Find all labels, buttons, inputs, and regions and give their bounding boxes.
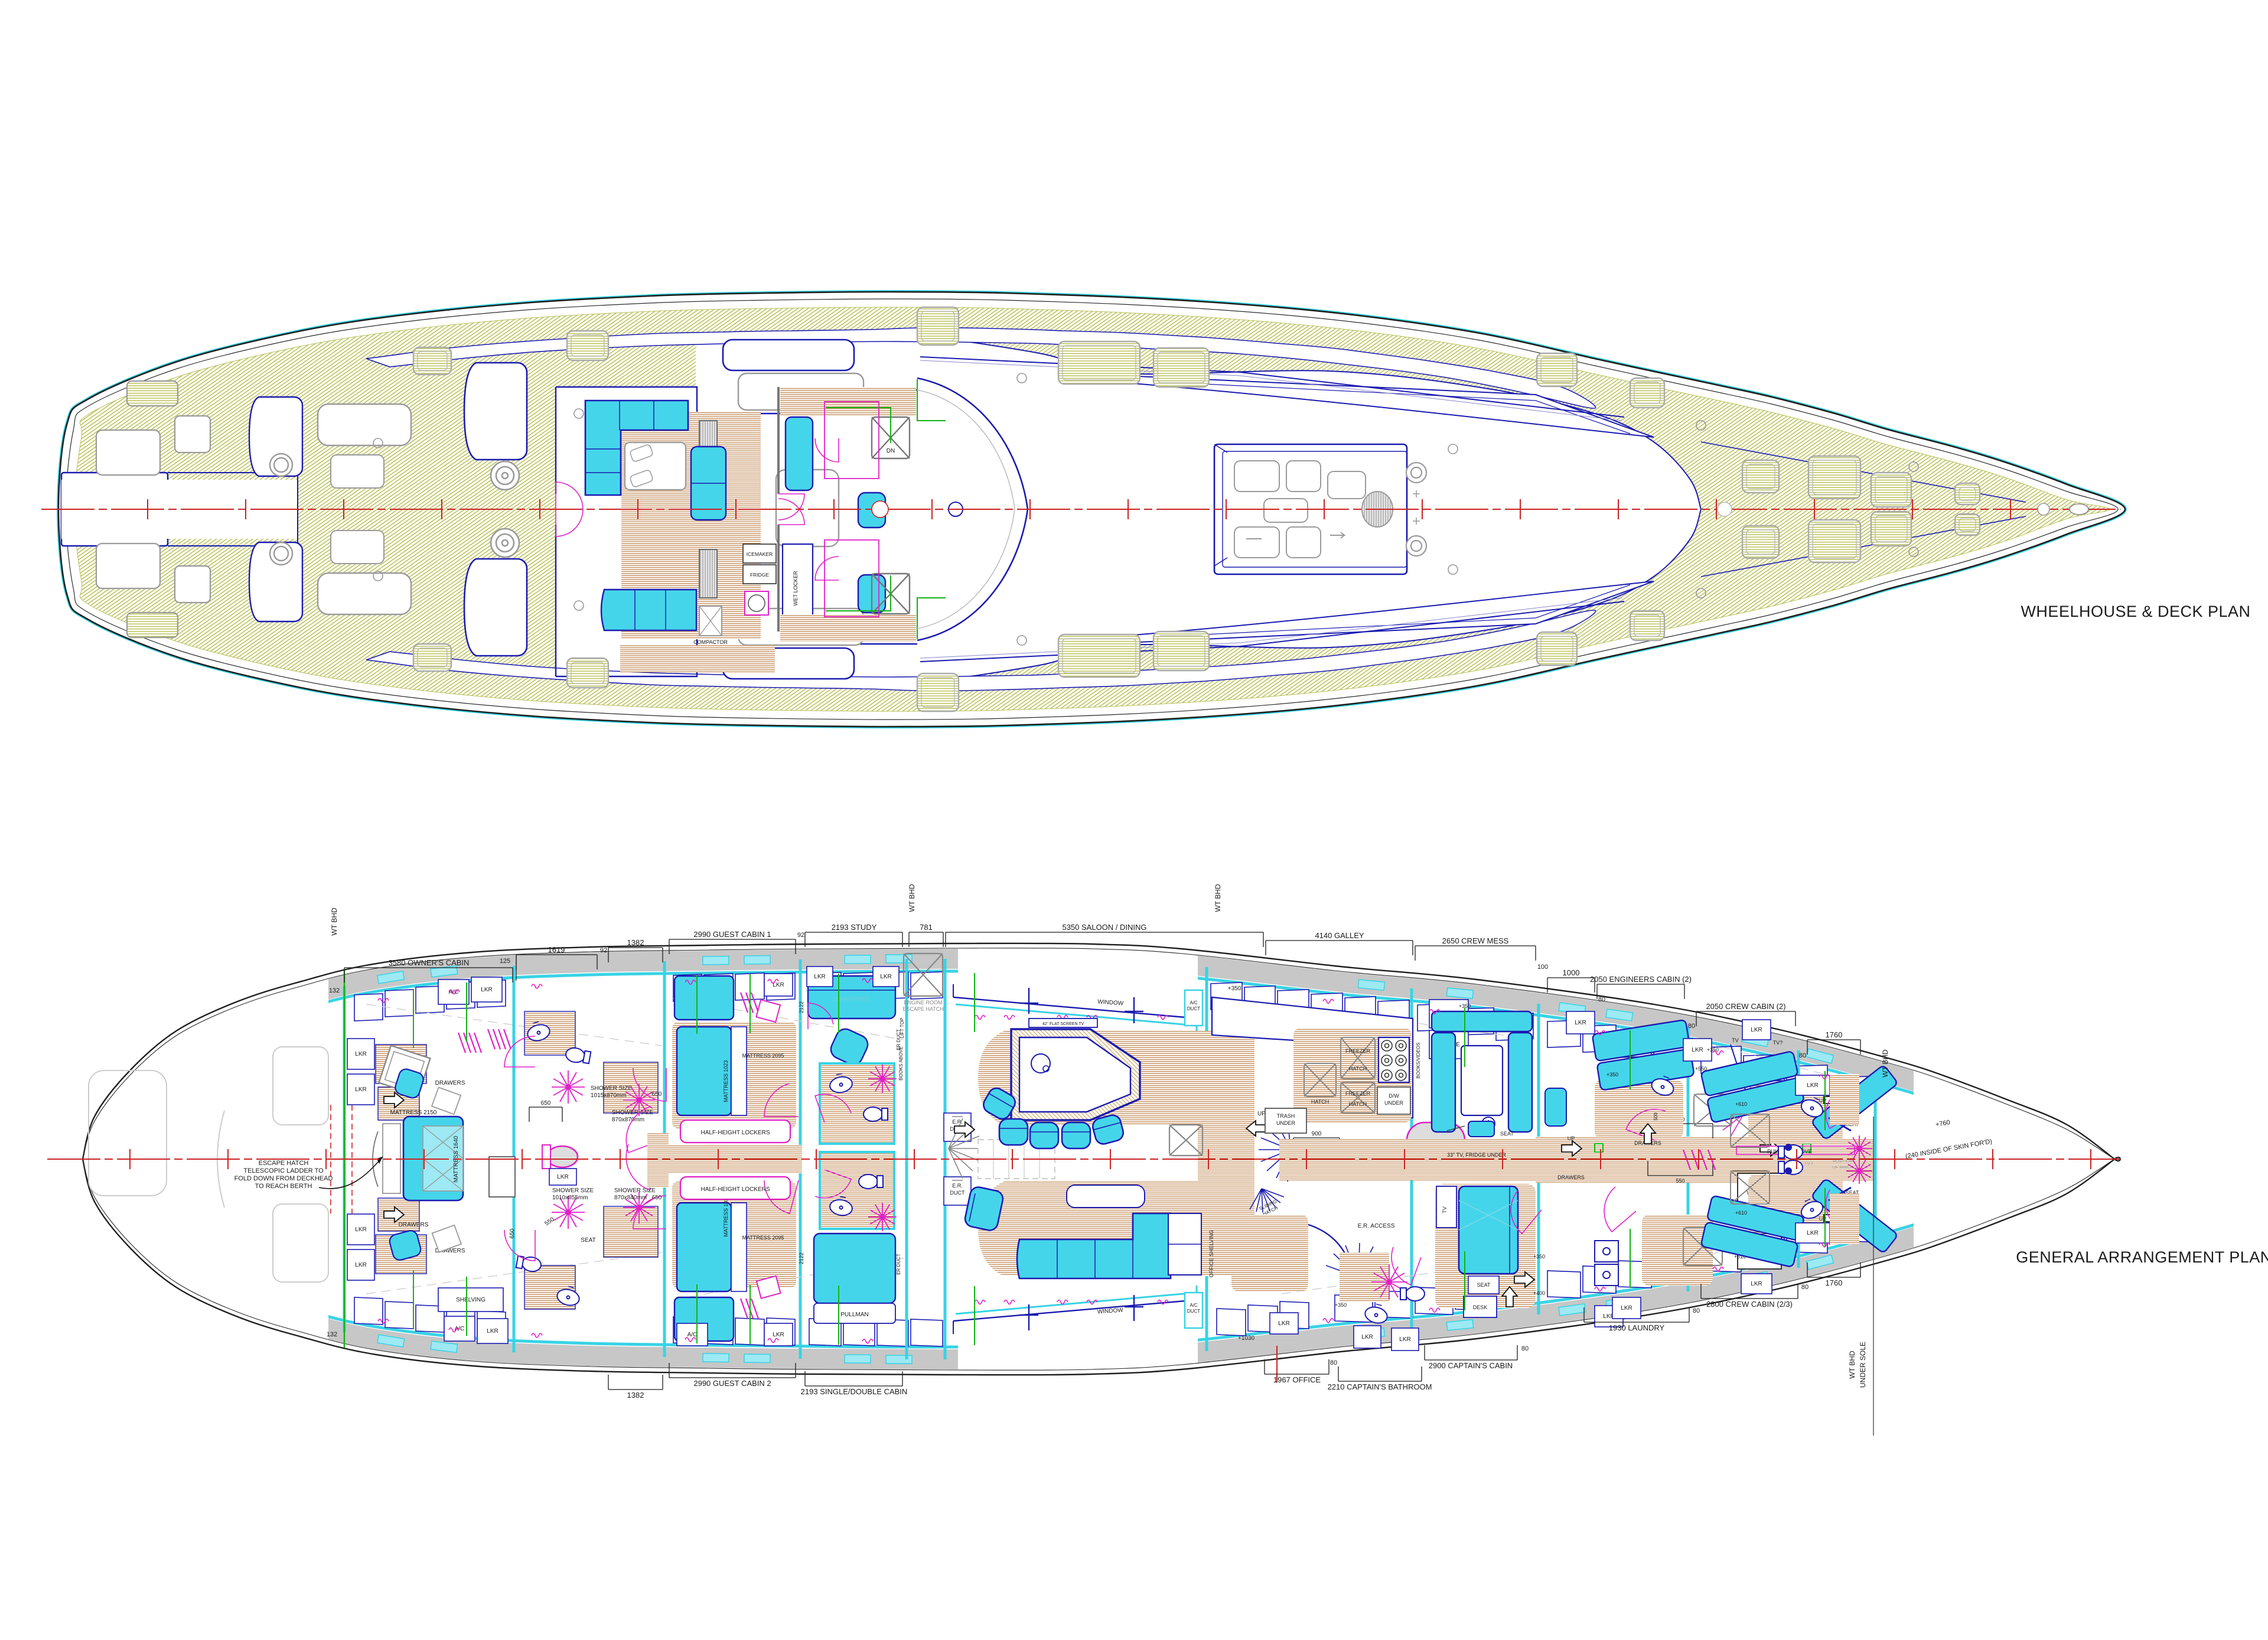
svg-text:ENGINE ROOM: ENGINE ROOM bbox=[904, 1000, 942, 1006]
svg-text:LKR: LKR bbox=[355, 1262, 366, 1268]
svg-text:LKR: LKR bbox=[1807, 1230, 1818, 1236]
svg-text:LKR: LKR bbox=[355, 1086, 366, 1093]
svg-text:LKR: LKR bbox=[481, 987, 492, 993]
svg-text:TV: TV bbox=[1732, 1037, 1739, 1043]
svg-text:LKR: LKR bbox=[880, 974, 891, 980]
svg-text:LKR: LKR bbox=[355, 1226, 366, 1233]
svg-text:1760: 1760 bbox=[1826, 1278, 1843, 1287]
svg-text:33" TV, FRIDGE UNDER: 33" TV, FRIDGE UNDER bbox=[1447, 1152, 1506, 1158]
svg-text:+1030: +1030 bbox=[1238, 1335, 1255, 1342]
svg-text:2210 CAPTAIN'S BATHROOM: 2210 CAPTAIN'S BATHROOM bbox=[1328, 1382, 1432, 1391]
svg-text:HALF-HEIGHT LOCKERS: HALF-HEIGHT LOCKERS bbox=[700, 1186, 770, 1193]
svg-text:LKR: LKR bbox=[487, 1328, 498, 1335]
svg-text:UP: UP bbox=[1568, 1135, 1575, 1141]
svg-text:E.R. ACCESS: E.R. ACCESS bbox=[1358, 1223, 1395, 1229]
svg-text:UNDER SOLE: UNDER SOLE bbox=[1859, 1342, 1867, 1388]
svg-text:80: 80 bbox=[1688, 1023, 1695, 1030]
svg-text:1930 LAUNDRY: 1930 LAUNDRY bbox=[1609, 1323, 1665, 1332]
svg-text:MATTRESS 1023: MATTRESS 1023 bbox=[723, 1195, 729, 1237]
svg-text:OF WINCH: OF WINCH bbox=[1832, 1166, 1853, 1170]
svg-text:TO REACH BERTH: TO REACH BERTH bbox=[255, 1183, 312, 1190]
svg-text:UNDER: UNDER bbox=[1276, 1120, 1296, 1126]
svg-text:+350: +350 bbox=[1228, 985, 1241, 992]
svg-text:FOLD DOWN FROM DECKHEAD: FOLD DOWN FROM DECKHEAD bbox=[234, 1175, 333, 1182]
svg-text:1967 OFFICE: 1967 OFFICE bbox=[1273, 1375, 1321, 1384]
svg-text:SHOWER SIZE: SHOWER SIZE bbox=[552, 1187, 594, 1194]
svg-text:80: 80 bbox=[1801, 1284, 1808, 1291]
svg-text:SHOWER SIZE: SHOWER SIZE bbox=[612, 1109, 653, 1116]
svg-text:FREEZER: FREEZER bbox=[1345, 1048, 1371, 1054]
svg-text:1015x870mm: 1015x870mm bbox=[591, 1092, 627, 1099]
svg-text:900: 900 bbox=[1312, 1131, 1322, 1137]
svg-text:A/C: A/C bbox=[1190, 1000, 1198, 1006]
svg-text:ICEMAKER: ICEMAKER bbox=[747, 551, 773, 557]
svg-text:80: 80 bbox=[1799, 1052, 1806, 1059]
svg-text:E.R.: E.R. bbox=[952, 1183, 963, 1189]
svg-text:+400: +400 bbox=[1533, 1290, 1545, 1296]
svg-text:LKR: LKR bbox=[1751, 1027, 1762, 1033]
svg-text:PULLMAN: PULLMAN bbox=[840, 1312, 868, 1318]
svg-text:WT BHD: WT BHD bbox=[1848, 1351, 1856, 1378]
svg-text:SEAT: SEAT bbox=[1500, 1131, 1514, 1137]
svg-text:ESCAPE HATCH: ESCAPE HATCH bbox=[902, 1006, 943, 1012]
svg-text:LKR: LKR bbox=[814, 974, 825, 980]
svg-text:ER DUCT: ER DUCT bbox=[896, 1254, 901, 1275]
svg-text:+610: +610 bbox=[1735, 1101, 1747, 1107]
svg-text:42" FLAT SCREEN TV: 42" FLAT SCREEN TV bbox=[1042, 1022, 1084, 1026]
svg-text:2193 STUDY: 2193 STUDY bbox=[832, 923, 877, 932]
svg-text:LKR: LKR bbox=[1399, 1336, 1410, 1343]
svg-text:DRAWERS: DRAWERS bbox=[1557, 1174, 1585, 1180]
svg-text:650: 650 bbox=[509, 1228, 516, 1238]
svg-text:92: 92 bbox=[797, 932, 804, 939]
svg-text:2900 CAPTAIN'S CABIN: 2900 CAPTAIN'S CABIN bbox=[1429, 1361, 1513, 1370]
svg-text:5350 SALOON / DINING: 5350 SALOON / DINING bbox=[1062, 923, 1146, 932]
svg-text:TV: TV bbox=[1442, 1206, 1448, 1213]
svg-text:LKR: LKR bbox=[1361, 1334, 1373, 1340]
svg-text:TELESCOPIC LADDER TO: TELESCOPIC LADDER TO bbox=[243, 1167, 324, 1174]
svg-text:A/C: A/C bbox=[1190, 1303, 1198, 1308]
svg-text:SEAT: SEAT bbox=[581, 1237, 595, 1244]
svg-text:125: 125 bbox=[500, 958, 510, 965]
svg-text:A/C: A/C bbox=[687, 1332, 698, 1338]
svg-text:DRAWERS: DRAWERS bbox=[399, 1222, 429, 1228]
svg-text:781: 781 bbox=[920, 923, 933, 932]
svg-text:FREEZER: FREEZER bbox=[1345, 1091, 1371, 1096]
svg-text:TV?: TV? bbox=[1773, 1040, 1783, 1046]
svg-text:DUCT: DUCT bbox=[1187, 1309, 1200, 1314]
svg-text:WET LOCKER: WET LOCKER bbox=[793, 571, 799, 606]
svg-text:+350: +350 bbox=[1606, 1072, 1618, 1078]
svg-text:1382: 1382 bbox=[627, 1391, 644, 1400]
svg-text:1382: 1382 bbox=[627, 938, 644, 947]
svg-text:650: 650 bbox=[652, 1091, 662, 1098]
svg-text:80: 80 bbox=[1330, 1359, 1337, 1366]
svg-text:HATCH: HATCH bbox=[1349, 1101, 1367, 1107]
svg-text:500: 500 bbox=[1653, 1112, 1658, 1121]
svg-text:650: 650 bbox=[652, 1195, 662, 1201]
svg-text:LKR: LKR bbox=[1278, 1320, 1289, 1327]
svg-text:80: 80 bbox=[1521, 1345, 1529, 1352]
svg-text:DRAWERS: DRAWERS bbox=[435, 1080, 465, 1086]
svg-text:1000: 1000 bbox=[1563, 968, 1580, 977]
svg-text:80: 80 bbox=[1598, 996, 1605, 1003]
svg-text:GENERAL ARRANGEMENT PLAN: GENERAL ARRANGEMENT PLAN bbox=[2016, 1248, 2268, 1266]
svg-text:LKR: LKR bbox=[1621, 1305, 1632, 1312]
svg-text:ER DUCT: ER DUCT bbox=[896, 1029, 901, 1050]
svg-text:DUCT: DUCT bbox=[950, 1190, 965, 1196]
svg-text:DN: DN bbox=[887, 448, 895, 454]
svg-text:4140 GALLEY: 4140 GALLEY bbox=[1315, 931, 1364, 940]
svg-text:100: 100 bbox=[1537, 964, 1548, 971]
svg-text:TV?: TV? bbox=[1804, 1161, 1813, 1166]
svg-text:870x870mm: 870x870mm bbox=[612, 1117, 644, 1123]
svg-text:MATTRESS 1023: MATTRESS 1023 bbox=[723, 1060, 729, 1102]
svg-text:DESK: DESK bbox=[1473, 1304, 1488, 1310]
svg-text:FRIDGE: FRIDGE bbox=[750, 572, 769, 578]
svg-text:OFFICE SHELVING: OFFICE SHELVING bbox=[1208, 1230, 1214, 1277]
svg-text:550: 550 bbox=[1676, 1178, 1684, 1184]
svg-text:3580 OWNER'S CABIN: 3580 OWNER'S CABIN bbox=[389, 958, 470, 967]
svg-text:BOOKS/VIDEOS: BOOKS/VIDEOS bbox=[1416, 1043, 1421, 1079]
svg-text:1760: 1760 bbox=[1826, 1030, 1843, 1039]
svg-text:870x840mm: 870x840mm bbox=[614, 1195, 647, 1201]
svg-text:LKR: LKR bbox=[1692, 1047, 1703, 1053]
svg-text:2800 CREW CABIN (2/3): 2800 CREW CABIN (2/3) bbox=[1706, 1300, 1793, 1309]
svg-text:WT BHD: WT BHD bbox=[908, 884, 916, 912]
svg-text:DUCT: DUCT bbox=[1187, 1006, 1200, 1011]
svg-text:1619: 1619 bbox=[548, 945, 565, 954]
svg-text:ESCAPE HATCH: ESCAPE HATCH bbox=[259, 1160, 309, 1167]
svg-text:WT BHD: WT BHD bbox=[330, 907, 338, 935]
svg-text:92: 92 bbox=[600, 947, 607, 954]
svg-text:D/W: D/W bbox=[1389, 1093, 1399, 1099]
svg-text:LKR: LKR bbox=[355, 1051, 366, 1057]
svg-text:+350: +350 bbox=[1335, 1302, 1347, 1308]
svg-text:SEAT: SEAT bbox=[1477, 1282, 1491, 1288]
svg-text:BOOKS ABOVE: BOOKS ABOVE bbox=[898, 1046, 904, 1081]
svg-text:LKR: LKR bbox=[773, 1332, 784, 1338]
svg-text:650: 650 bbox=[541, 1100, 551, 1107]
svg-text:2193 SINGLE/DOUBLE CABIN: 2193 SINGLE/DOUBLE CABIN bbox=[801, 1387, 908, 1396]
svg-text:UNDER: UNDER bbox=[1384, 1100, 1404, 1106]
svg-text:2990 GUEST CABIN 2: 2990 GUEST CABIN 2 bbox=[693, 1379, 771, 1388]
svg-text:HALF-HEIGHT LOCKERS: HALF-HEIGHT LOCKERS bbox=[700, 1130, 770, 1136]
svg-text:HATCH: HATCH bbox=[1349, 1066, 1367, 1072]
svg-text:LKR: LKR bbox=[1751, 1281, 1762, 1287]
svg-text:2650 CREW MESS: 2650 CREW MESS bbox=[1442, 936, 1509, 945]
svg-text:+610: +610 bbox=[1735, 1210, 1747, 1216]
svg-text:80: 80 bbox=[1693, 1307, 1700, 1314]
svg-text:1010x855mm: 1010x855mm bbox=[552, 1195, 588, 1201]
svg-text:2050 ENGINEERS CABIN (2): 2050 ENGINEERS CABIN (2) bbox=[1590, 975, 1692, 984]
svg-text:MATTRESS 2095: MATTRESS 2095 bbox=[742, 1235, 784, 1241]
svg-text:WT BHD: WT BHD bbox=[1881, 1049, 1889, 1077]
svg-text:LKR: LKR bbox=[1575, 1020, 1586, 1026]
svg-text:132: 132 bbox=[327, 1331, 337, 1338]
svg-text:SHOWER SIZE: SHOWER SIZE bbox=[591, 1085, 632, 1092]
svg-text:LKR: LKR bbox=[1807, 1082, 1818, 1089]
svg-text:2122: 2122 bbox=[799, 1001, 804, 1013]
svg-text:HATCH: HATCH bbox=[1311, 1099, 1329, 1105]
svg-text:MATTRESS 2150: MATTRESS 2150 bbox=[390, 1109, 437, 1116]
svg-text:132: 132 bbox=[329, 987, 340, 994]
svg-text:WHEELHOUSE & DECK PLAN: WHEELHOUSE & DECK PLAN bbox=[2021, 603, 2250, 620]
svg-text:2990 GUEST CABIN 1: 2990 GUEST CABIN 1 bbox=[693, 930, 771, 939]
svg-text:2050 CREW CABIN (2): 2050 CREW CABIN (2) bbox=[1706, 1002, 1785, 1011]
svg-text:LKR: LKR bbox=[557, 1174, 568, 1180]
svg-text:2122: 2122 bbox=[799, 1252, 804, 1264]
svg-text:MATTRESS 2095: MATTRESS 2095 bbox=[742, 1053, 784, 1059]
svg-text:SHELVING: SHELVING bbox=[456, 1297, 485, 1303]
svg-text:COMPACTOR: COMPACTOR bbox=[693, 639, 728, 645]
svg-text:POSITION: POSITION bbox=[1833, 1160, 1852, 1164]
svg-text:TRASH: TRASH bbox=[1277, 1113, 1295, 1119]
svg-text:WT BHD: WT BHD bbox=[1214, 884, 1222, 912]
svg-text:+350: +350 bbox=[1533, 1254, 1545, 1260]
